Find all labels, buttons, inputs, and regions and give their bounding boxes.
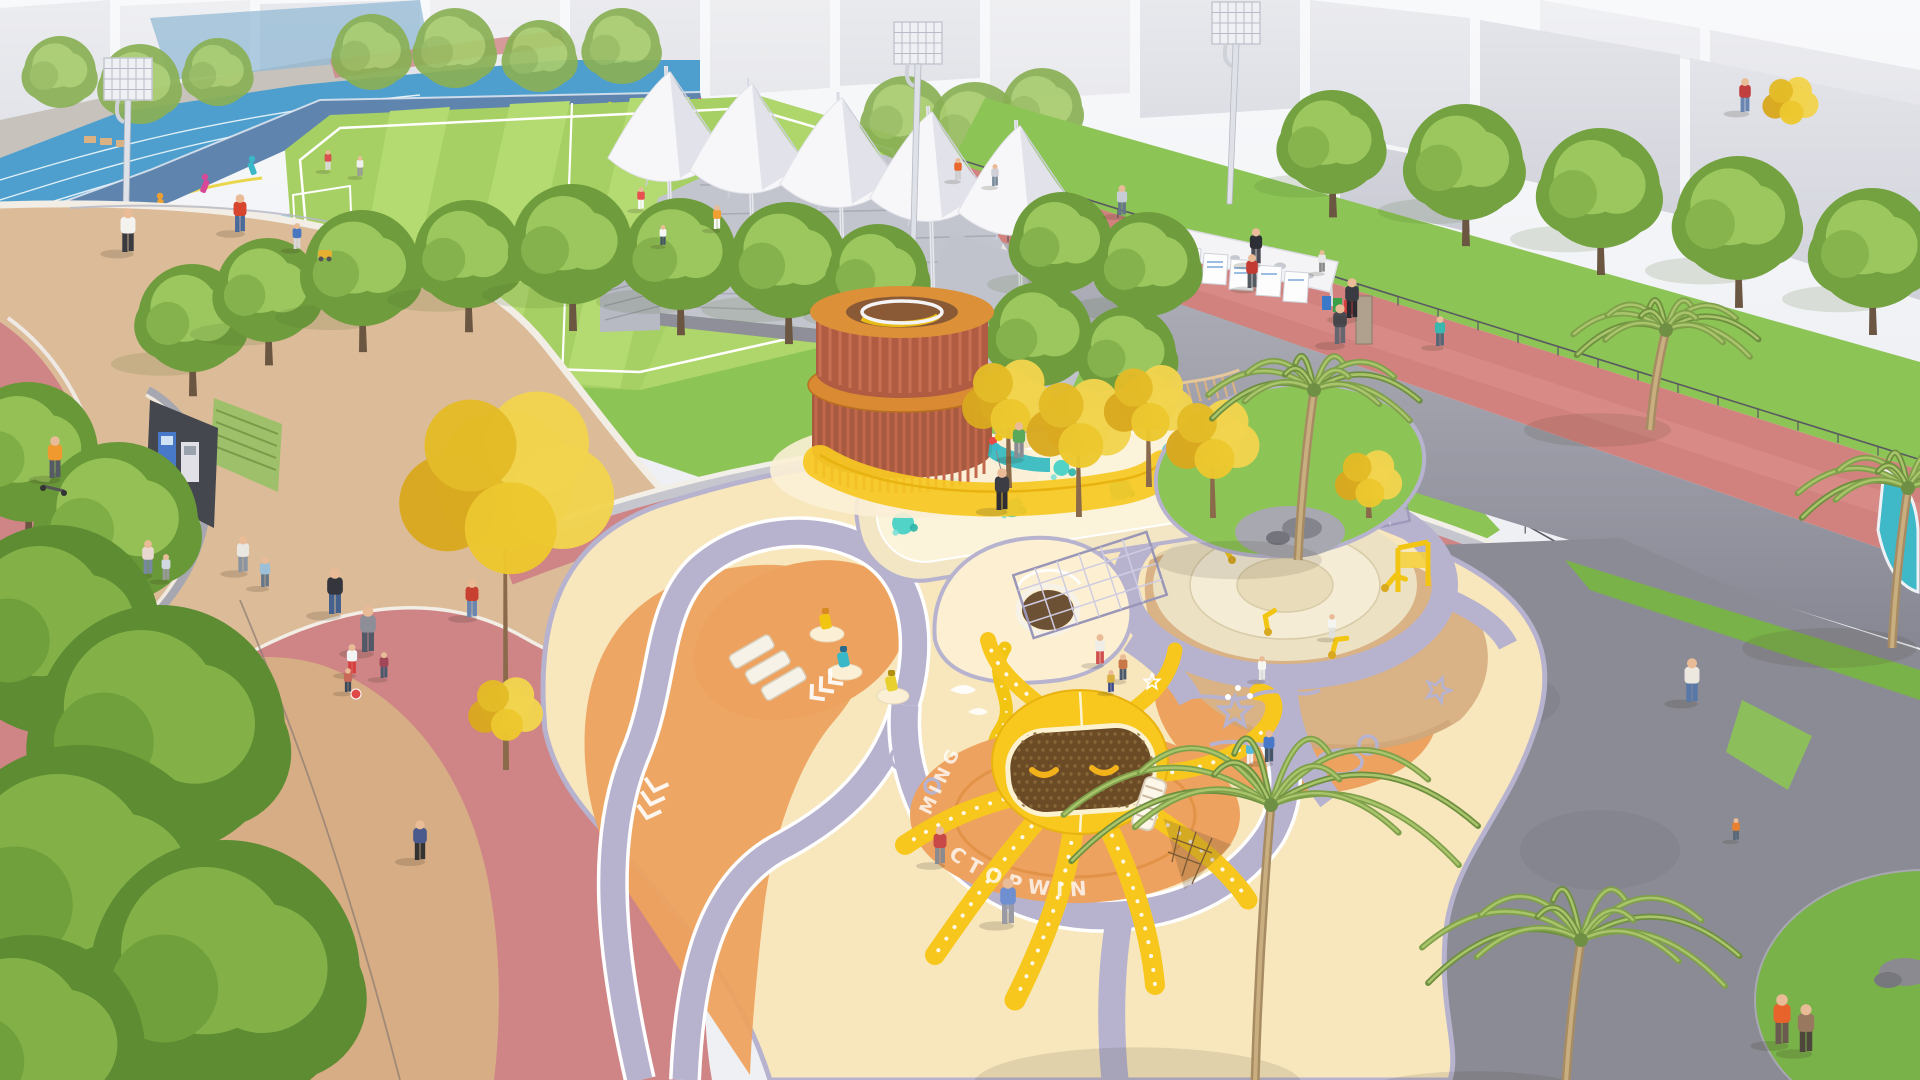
- park-scene: CTOPWING MING: [0, 0, 1920, 1080]
- ball: [351, 689, 361, 699]
- stone-sign: [1356, 296, 1372, 344]
- rendering-canvas: CTOPWING MING: [0, 0, 1920, 1080]
